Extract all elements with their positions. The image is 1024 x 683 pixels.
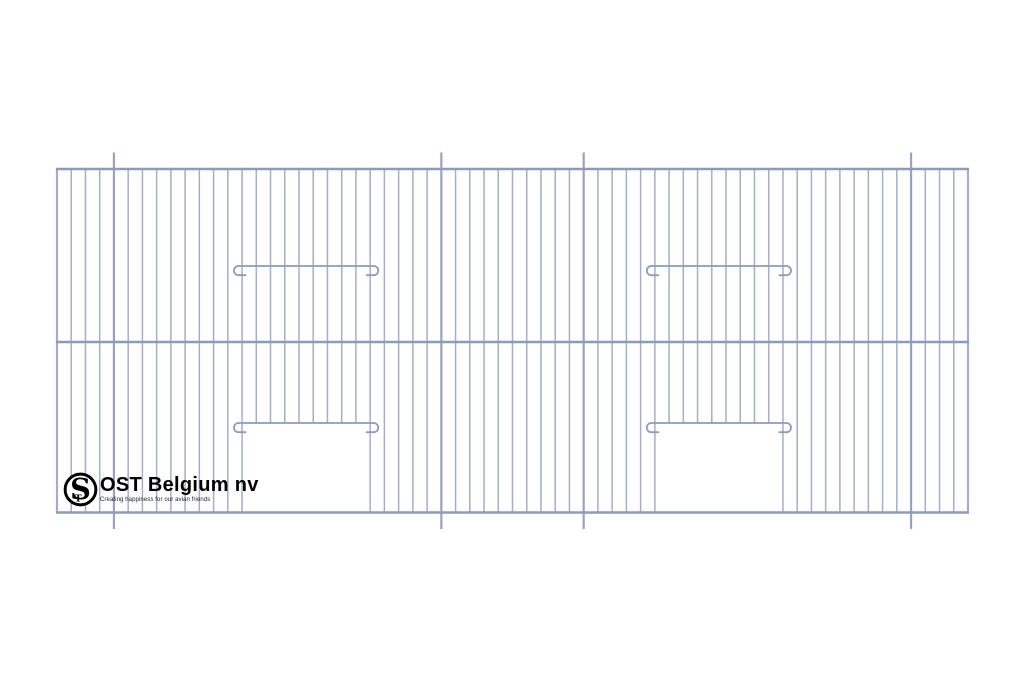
emblem-letter-t: T [75,494,82,505]
company-name: OST Belgium nv [100,476,259,495]
logo-text: OST Belgium nv Creating happiness for ou… [100,476,259,503]
company-tagline: Creating happiness for our avian friends [100,497,259,503]
cage-front-wire-drawing [0,0,1024,683]
drawing-page: S T OST Belgium nv Creating happiness fo… [0,0,1024,683]
company-logo: S T OST Belgium nv Creating happiness fo… [62,471,259,508]
ost-monogram-emblem: S T [62,471,99,508]
